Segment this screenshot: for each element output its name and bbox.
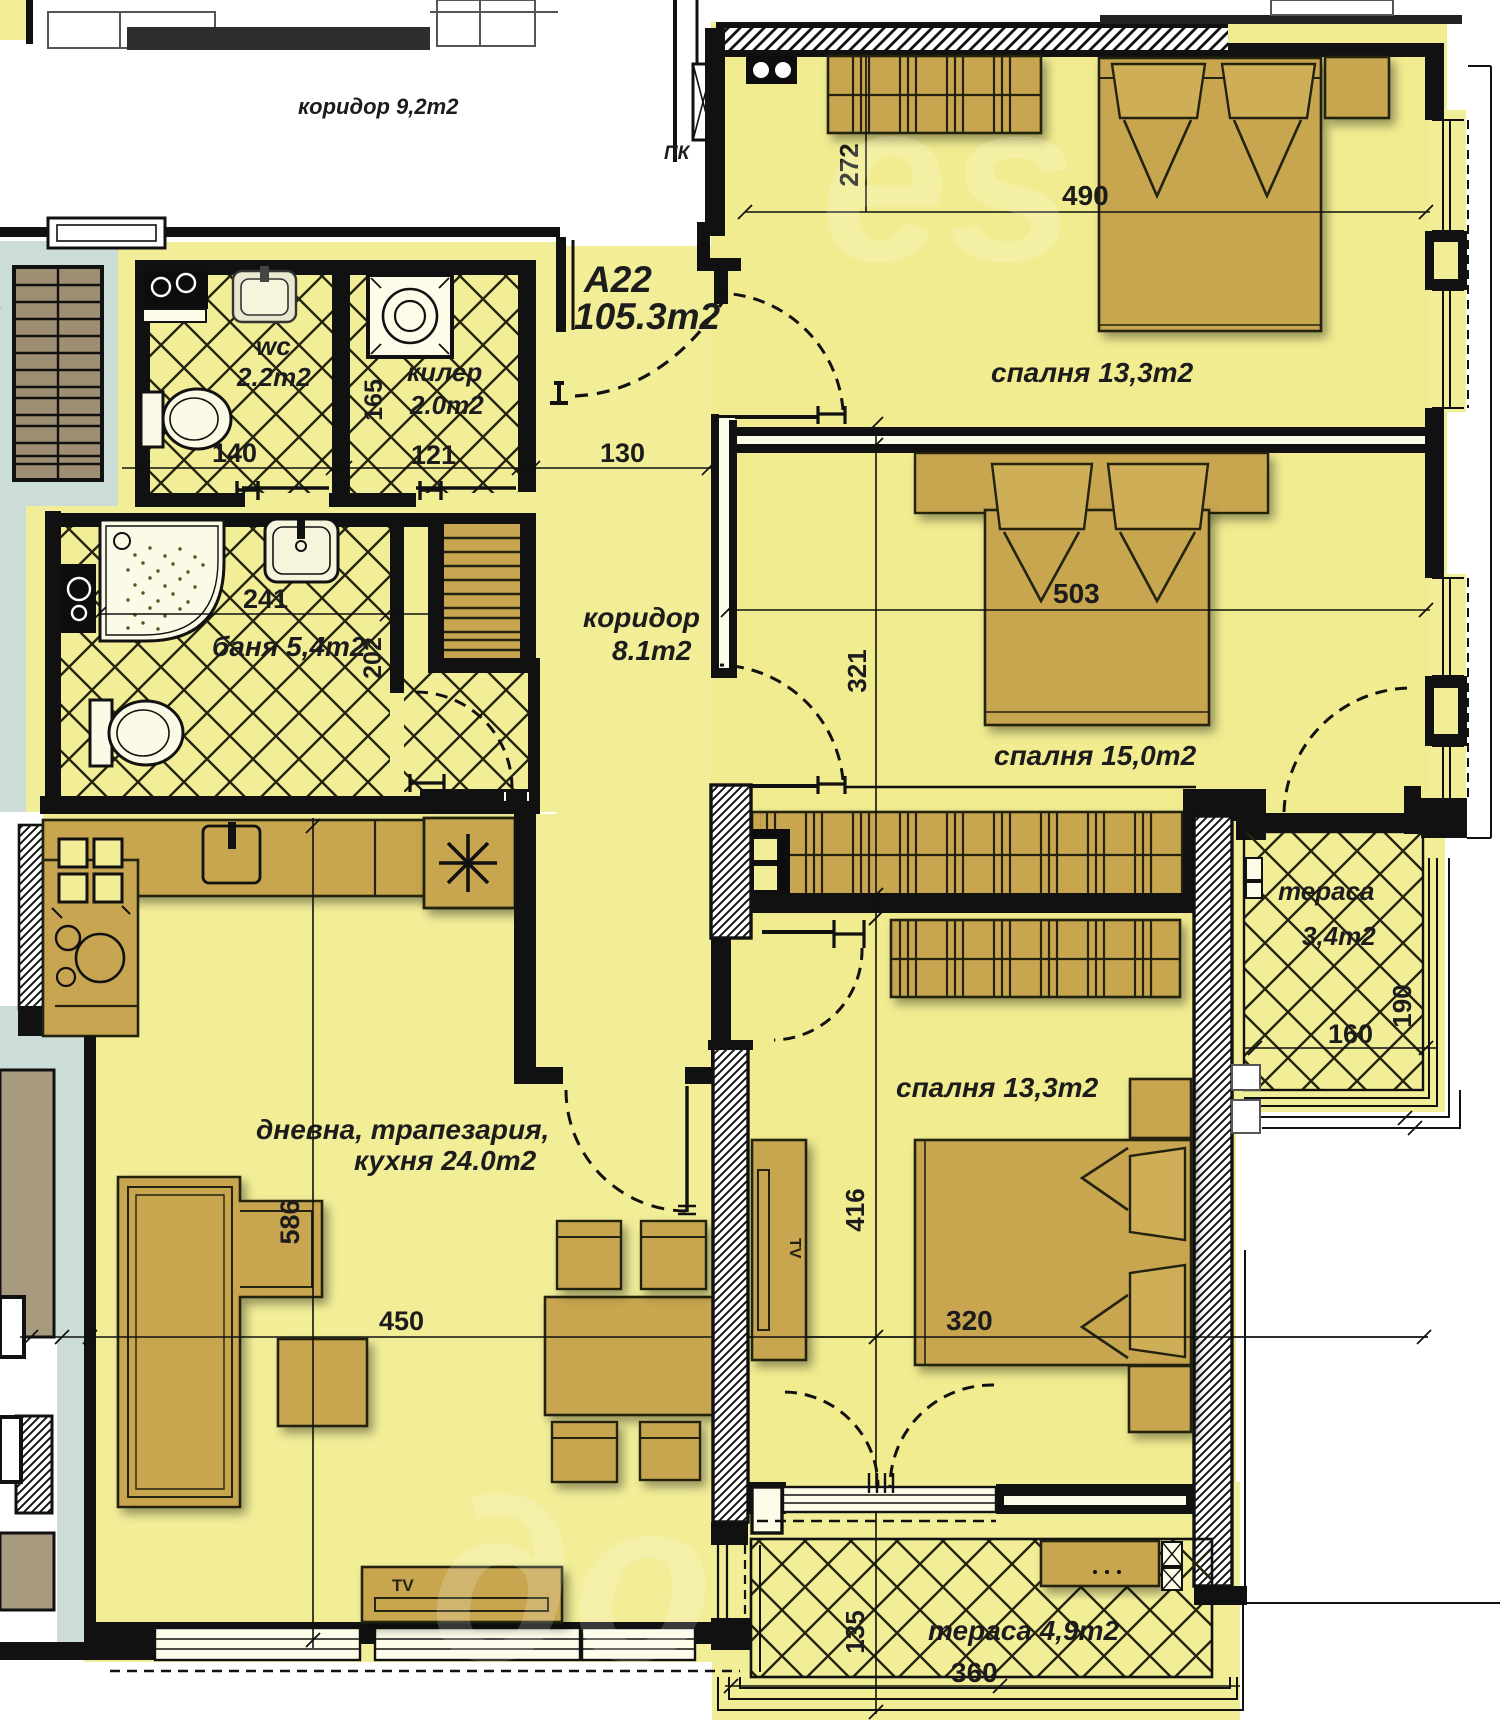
svg-text:тераса: тераса: [1278, 876, 1375, 906]
svg-text:450: 450: [379, 1306, 424, 1336]
svg-text:тераса 4,9m2: тераса 4,9m2: [928, 1615, 1120, 1646]
svg-text:кухня 24.0m2: кухня 24.0m2: [354, 1145, 537, 1176]
svg-text:до: до: [430, 1452, 713, 1709]
svg-text:дневна, трапезария,: дневна, трапезария,: [256, 1114, 549, 1145]
svg-text:ПК: ПК: [664, 143, 691, 164]
svg-text:коридор 9,2m2: коридор 9,2m2: [298, 94, 459, 119]
svg-text:320: 320: [946, 1305, 993, 1336]
svg-text:503: 503: [1053, 578, 1100, 609]
svg-text:спалня 13,3m2: спалня 13,3m2: [991, 357, 1194, 388]
svg-text:wc: wc: [256, 331, 291, 361]
svg-text:2.0m2: 2.0m2: [409, 390, 484, 420]
svg-text:баня 5,4m2: баня 5,4m2: [212, 631, 366, 662]
svg-text:TV: TV: [392, 1576, 414, 1595]
svg-text:коридор: коридор: [583, 602, 700, 633]
svg-text:360: 360: [951, 1657, 998, 1688]
svg-text:416: 416: [840, 1188, 870, 1231]
svg-text:3,4m2: 3,4m2: [1302, 921, 1376, 951]
svg-text:130: 130: [600, 438, 645, 468]
svg-text:586: 586: [275, 1199, 305, 1244]
svg-text:es: es: [820, 52, 1076, 309]
svg-text:165: 165: [360, 379, 388, 421]
svg-text:202: 202: [359, 637, 387, 679]
svg-text:2.2m2: 2.2m2: [236, 362, 311, 392]
svg-text:спалня 13,3m2: спалня 13,3m2: [896, 1072, 1099, 1103]
svg-text:140: 140: [212, 438, 257, 468]
svg-text:121: 121: [411, 440, 456, 470]
svg-text:A22: A22: [583, 259, 652, 300]
svg-text:8.1m2: 8.1m2: [612, 635, 692, 666]
svg-text:160: 160: [1328, 1019, 1373, 1049]
svg-text:килер: килер: [407, 357, 482, 387]
svg-text:TV: TV: [786, 1238, 803, 1259]
svg-text:105.3m2: 105.3m2: [574, 296, 720, 337]
svg-text:135: 135: [840, 1610, 870, 1653]
svg-text:321: 321: [842, 649, 872, 692]
svg-text:241: 241: [243, 584, 288, 614]
svg-text:190: 190: [1387, 984, 1417, 1027]
svg-text:спалня 15,0m2: спалня 15,0m2: [994, 740, 1197, 771]
